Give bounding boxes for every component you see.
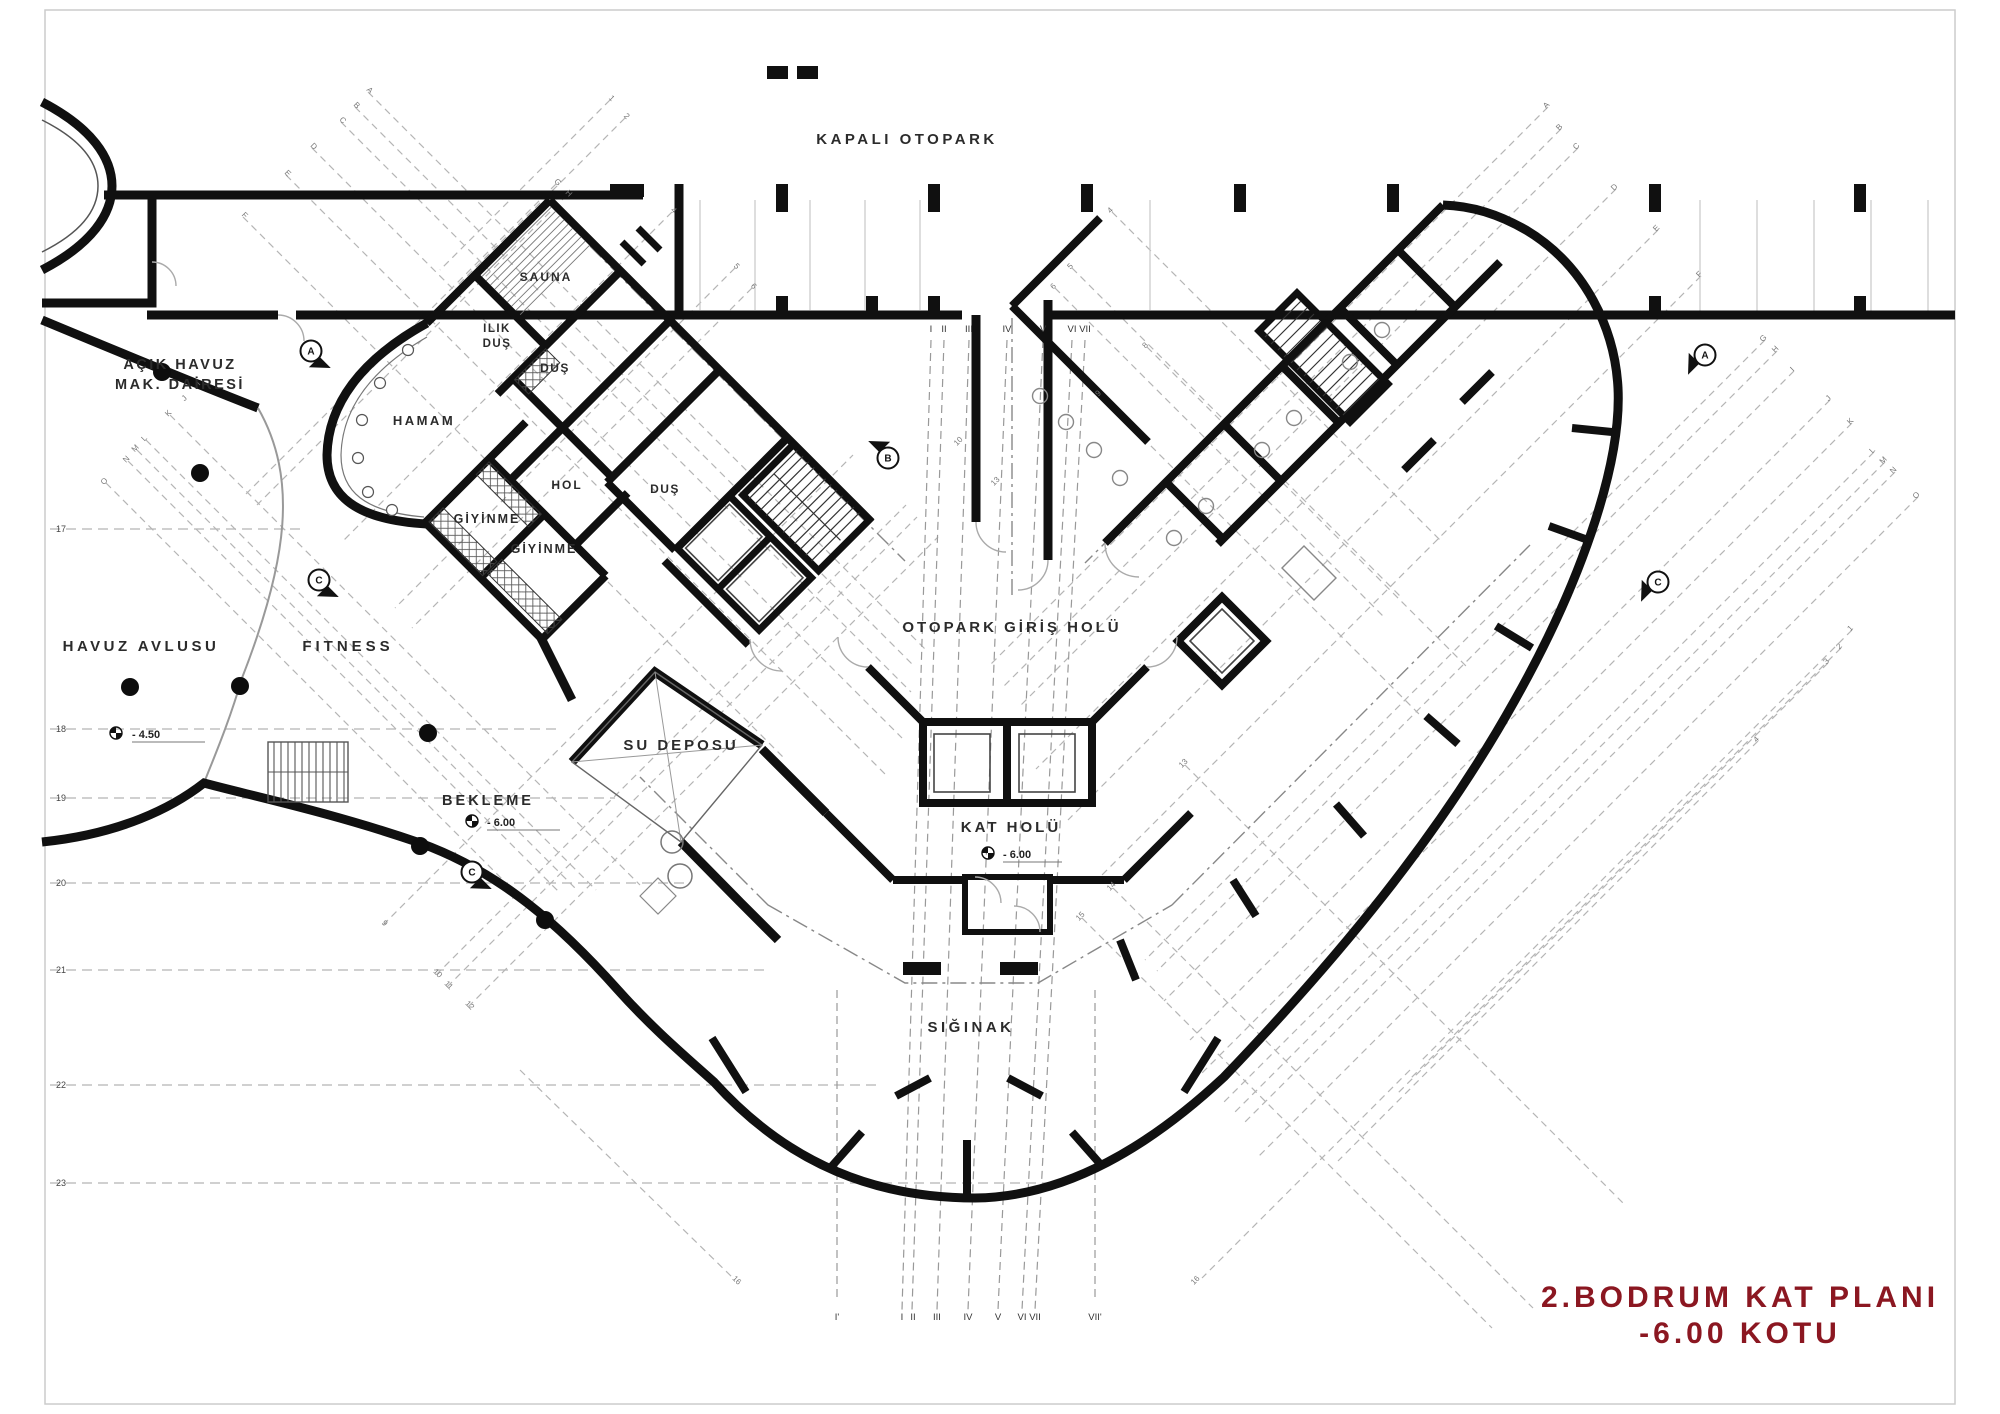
grid-row-numbers: 17181920212223 [56, 524, 66, 1188]
grid-letter-L: L [1867, 445, 1877, 455]
grid-number-labels: 12456456891013910111213141516161234 [380, 93, 1855, 1286]
grid-row-23: 23 [56, 1178, 66, 1188]
elevation-marker-2: - 6.00 [982, 847, 1062, 862]
grid-number-11: 11 [443, 979, 456, 992]
room-label-fitness: FITNESS [302, 638, 393, 655]
svg-text:A: A [1701, 351, 1708, 362]
grid-letter-labels: ABCDEFGHIJKLMNOABCDEFGHIJKLMNO [99, 85, 1922, 500]
roman-bottom-VII': VII' [1088, 1312, 1102, 1323]
room-label-otopark-giris-holu: OTOPARK GİRİŞ HOLÜ [902, 619, 1121, 636]
grid-number-12: 12 [463, 999, 476, 1012]
grid-number-10: 10 [431, 967, 444, 980]
grid-letter-C: C [1571, 141, 1582, 152]
room-label-ilik-dus-line2: DUŞ [483, 338, 512, 350]
room-label-acik-havuz-line1: AÇIK HAVUZ [123, 357, 236, 373]
svg-text:C: C [468, 868, 475, 879]
elevation-value: - 6.00 [1003, 849, 1031, 861]
grid-letter-N: N [1888, 465, 1899, 476]
dashed-grid-lines [50, 92, 1918, 1328]
grid-letter-I: I [1788, 365, 1796, 373]
title-line-2: -6.00 KOTU [1639, 1317, 1841, 1350]
room-label-dus-1: DUŞ [540, 361, 570, 375]
grid-number-16: 16 [730, 1274, 743, 1287]
roman-top-V: V [1040, 324, 1047, 335]
roman-top-III: III [965, 324, 973, 335]
core-elevators [826, 667, 1191, 932]
elevation-marker-0: - 4.50 [110, 727, 205, 742]
roman-bottom-VI: VI [1018, 1312, 1027, 1323]
grid-row-22: 22 [56, 1080, 66, 1090]
grid-letter-H: H [1770, 344, 1781, 355]
roman-top-VII: VII [1079, 324, 1091, 335]
parking-stall-lines [700, 200, 1928, 312]
grid-letter-A: A [1541, 100, 1552, 111]
grid-row-18: 18 [56, 724, 66, 734]
roman-top-IV: IV [1003, 324, 1013, 335]
right-wing-elevator [1178, 597, 1266, 685]
grid-number-4: 4 [1751, 734, 1761, 744]
grid-row-19: 19 [56, 793, 66, 803]
roman-bottom-I': I' [835, 1312, 840, 1323]
grid-letter-D: D [1609, 182, 1620, 193]
grid-number-13: 13 [989, 475, 1002, 488]
room-label-kat-holu: KAT HOLÜ [961, 819, 1061, 836]
floor-plan-page: 17181920212223 IIIIIIIVVVIVIII'IIIIIIIVV… [0, 0, 2000, 1414]
svg-text:C: C [315, 576, 322, 587]
roman-top-II: II [941, 324, 946, 335]
room-label-havuz-avlusu: HAVUZ AVLUSU [63, 638, 220, 655]
grid-letter-J: J [1824, 394, 1833, 403]
grid-letter-D: D [309, 141, 320, 152]
section-marker-c: C [1630, 572, 1668, 602]
grid-number-10: 10 [952, 435, 965, 448]
roman-top-I: I [930, 324, 933, 335]
room-label-dus-2: DUŞ [650, 482, 680, 496]
grid-letter-C: C [338, 115, 349, 126]
grid-letter-B: B [1554, 122, 1564, 132]
section-marker-c: C [309, 570, 339, 608]
grid-letter-E: E [1651, 223, 1661, 233]
outdoor-stair [268, 742, 348, 802]
floor-plan-drawing: 17181920212223 IIIIIIIVVVIVIII'IIIIIIIVV… [0, 0, 2000, 1414]
drawing-title: 2.BODRUM KAT PLANI -6.00 KOTU [1541, 1281, 1939, 1350]
room-label-sauna: SAUNA [520, 270, 573, 284]
room-label-hol: HOL [551, 478, 582, 492]
title-line-1: 2.BODRUM KAT PLANI [1541, 1281, 1939, 1314]
wc-fixtures [1033, 323, 1390, 601]
room-label-hamam: HAMAM [393, 413, 455, 428]
section-marker-b: B [868, 430, 898, 468]
elevation-value: - 4.50 [132, 729, 160, 741]
svg-text:B: B [884, 454, 891, 465]
roman-bottom-IV: IV [964, 1312, 974, 1323]
grid-letter-M: M [1878, 454, 1889, 465]
room-label-kapali-otopark: KAPALI OTOPARK [816, 131, 998, 148]
grid-letter-K: K [1845, 416, 1856, 427]
room-label-acik-havuz-line2: MAK. DAİRESİ [115, 376, 245, 393]
roman-bottom-V: V [995, 1312, 1002, 1323]
grid-number-9: 9 [380, 918, 390, 928]
section-marker-a: A [1677, 345, 1715, 375]
su-deposu [540, 636, 826, 940]
roman-bottom-III: III [933, 1312, 941, 1323]
elevation-value: - 6.00 [487, 817, 515, 829]
grid-letter-G: G [1758, 333, 1769, 344]
grid-letter-J: J [180, 394, 189, 403]
roman-bottom-VII: VII [1029, 1312, 1041, 1323]
grid-letter-E: E [283, 168, 293, 178]
bench-crosshatch-bands [401, 349, 689, 637]
grid-number-16: 16 [1189, 1274, 1202, 1287]
grid-letter-O: O [1911, 490, 1922, 501]
roman-bottom-I: I [901, 1312, 904, 1323]
room-label-siginak: SIĞINAK [927, 1018, 1014, 1036]
room-label-giyinme-1: GİYİNME [454, 511, 521, 526]
grid-letter-F: F [1694, 269, 1704, 279]
parking-walls [42, 184, 1955, 560]
room-label-bekleme: BEKLEME [442, 793, 534, 809]
section-marker-a: A [301, 341, 331, 379]
grid-number-3: 3 [1821, 656, 1831, 666]
grid-row-21: 21 [56, 965, 66, 975]
room-label-ilik-dus-line1: ILIK [483, 323, 511, 335]
roman-bottom-II: II [910, 1312, 915, 1323]
grid-letter-B: B [352, 100, 362, 110]
svg-text:C: C [1654, 578, 1661, 589]
grid-row-20: 20 [56, 878, 66, 888]
grid-number-1: 1 [1845, 623, 1855, 633]
grid-row-17: 17 [56, 524, 66, 534]
left-wing [326, 200, 871, 745]
room-label-su-deposu: SU DEPOSU [623, 737, 738, 754]
pool-arc [42, 102, 112, 270]
misc-bars [622, 228, 660, 264]
roman-top-VI: VI [1068, 324, 1077, 335]
room-label-giyinme-2: GİYİNME [511, 541, 578, 556]
svg-text:A: A [307, 347, 314, 358]
